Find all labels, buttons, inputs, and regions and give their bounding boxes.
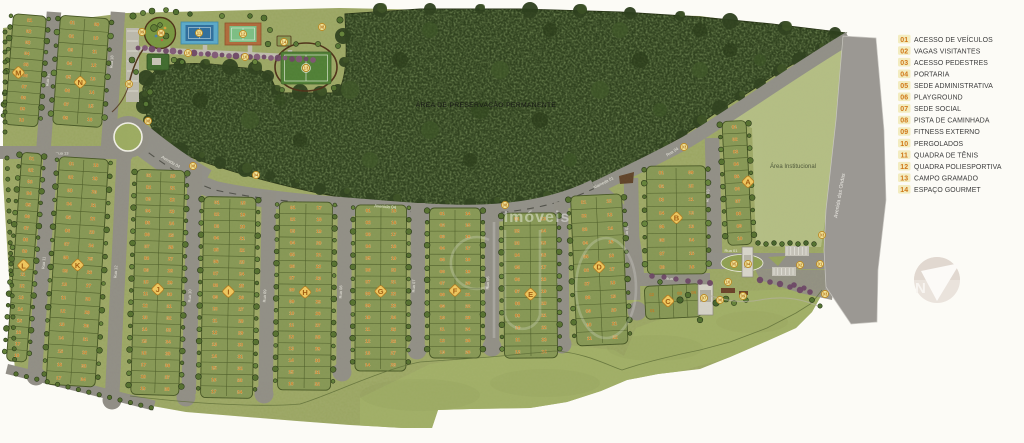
svg-text:12: 12 [900, 164, 908, 171]
svg-text:FITNESS EXTERNO: FITNESS EXTERNO [914, 129, 980, 136]
svg-text:QUADRA DE TÊNIS: QUADRA DE TÊNIS [914, 150, 978, 159]
svg-text:07: 07 [900, 106, 908, 113]
svg-text:05: 05 [900, 83, 908, 90]
svg-text:08: 08 [900, 118, 908, 125]
svg-text:VAGAS VISITANTES: VAGAS VISITANTES [914, 48, 981, 55]
svg-text:Imóveis: Imóveis [504, 209, 571, 226]
svg-text:14: 14 [900, 187, 908, 194]
svg-text:ACESSO PEDESTRES: ACESSO PEDESTRES [914, 60, 988, 67]
svg-text:04: 04 [900, 72, 908, 79]
svg-text:02: 02 [900, 48, 908, 55]
svg-text:01: 01 [900, 37, 908, 44]
svg-text:09: 09 [900, 129, 908, 136]
svg-text:SEDE ADMINISTRATIVA: SEDE ADMINISTRATIVA [914, 83, 993, 90]
svg-text:CAMPO GRAMADO: CAMPO GRAMADO [914, 175, 979, 182]
svg-text:PORTARIA: PORTARIA [914, 72, 950, 79]
svg-text:13: 13 [900, 175, 908, 182]
svg-text:ACESSO DE VEÍCULOS: ACESSO DE VEÍCULOS [914, 35, 993, 44]
svg-text:01: 01 [27, 18, 33, 23]
svg-text:QUADRA POLIESPORTIVA: QUADRA POLIESPORTIVA [914, 164, 1002, 171]
svg-text:11: 11 [900, 152, 908, 159]
svg-text:N: N [915, 280, 926, 297]
svg-text:10: 10 [900, 141, 908, 148]
svg-text:03: 03 [823, 292, 828, 297]
svg-text:ESPAÇO GOURMET: ESPAÇO GOURMET [914, 187, 981, 194]
svg-text:06: 06 [900, 95, 908, 102]
svg-text:PISTA DE CAMINHADA: PISTA DE CAMINHADA [914, 118, 990, 125]
svg-text:03: 03 [900, 60, 908, 67]
svg-text:PERGOLADOS: PERGOLADOS [914, 141, 964, 148]
svg-text:PLAYGROUND: PLAYGROUND [914, 95, 963, 102]
svg-text:SEDE SOCIAL: SEDE SOCIAL [914, 106, 961, 113]
